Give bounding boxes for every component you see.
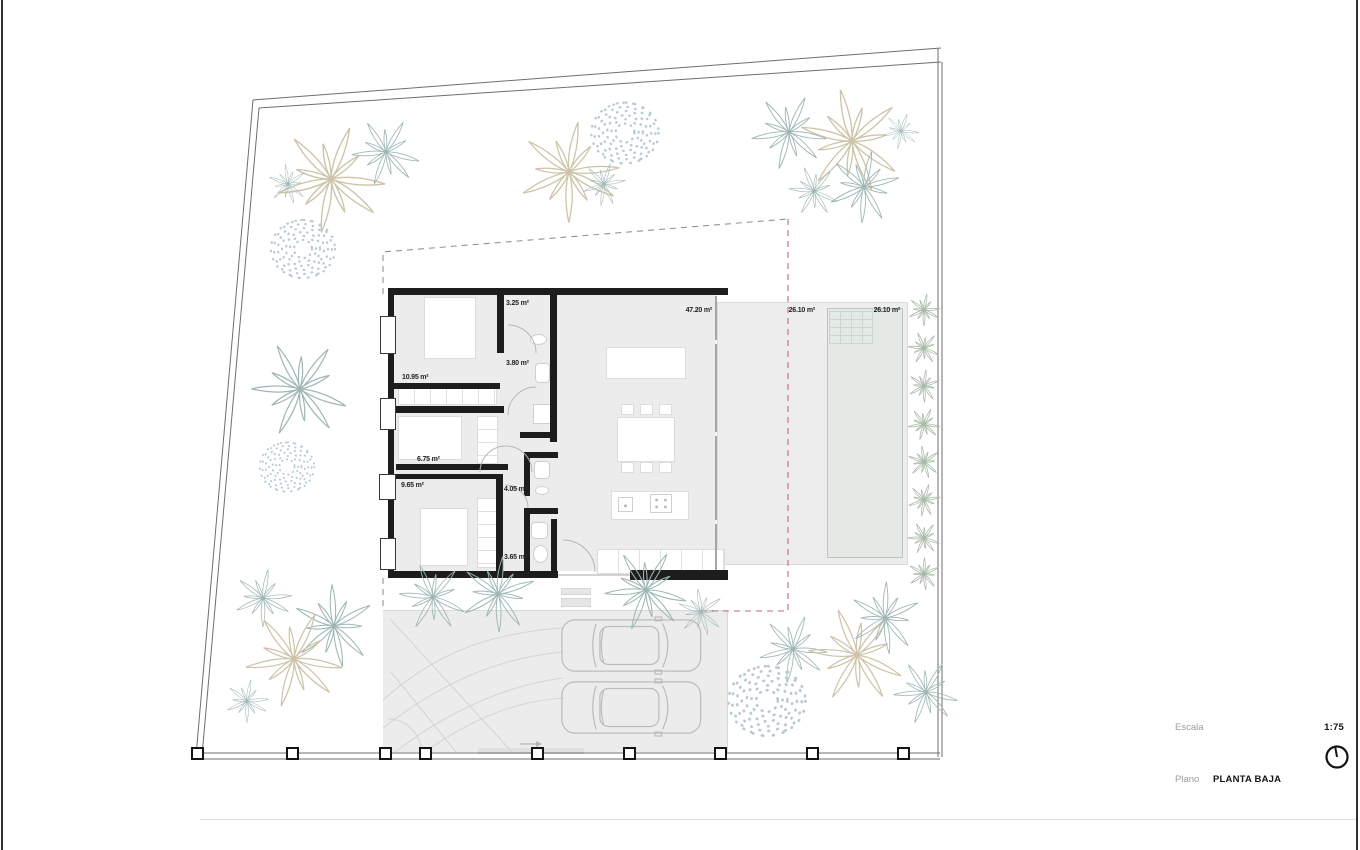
title-block: Escala 1:75 Plano PLANTA BAJA <box>1160 700 1360 810</box>
room-area-label: 4.05 m² <box>504 485 527 494</box>
sheet-divider-line <box>200 819 1356 820</box>
room-area-label: 26.10 m² <box>850 306 900 315</box>
room-area-label: 3.80 m² <box>506 359 529 368</box>
plan-sheet: 3.25 m² 3.80 m² 10.95 m² 6.75 m² 9.65 m²… <box>0 0 1360 850</box>
plan-value: PLANTA BAJA <box>1213 774 1281 785</box>
scale-label: Escala <box>1175 722 1204 733</box>
room-area-label: 26.10 m² <box>765 306 815 315</box>
sheet-border-left <box>1 0 3 850</box>
room-area-label: 3.65 m² <box>504 553 527 562</box>
room-area-label: 3.25 m² <box>506 299 529 308</box>
room-area-label: 9.65 m² <box>401 481 424 490</box>
plan-label: Plano <box>1175 774 1199 785</box>
label-layer: 3.25 m² 3.80 m² 10.95 m² 6.75 m² 9.65 m²… <box>0 0 1360 850</box>
scale-value: 1:75 <box>1324 722 1344 733</box>
room-area-label: 47.20 m² <box>662 306 712 315</box>
room-area-label: 10.95 m² <box>402 373 428 382</box>
room-area-label: 6.75 m² <box>417 455 440 464</box>
sheet-border-right <box>1356 0 1358 850</box>
north-indicator-icon <box>1322 742 1352 772</box>
